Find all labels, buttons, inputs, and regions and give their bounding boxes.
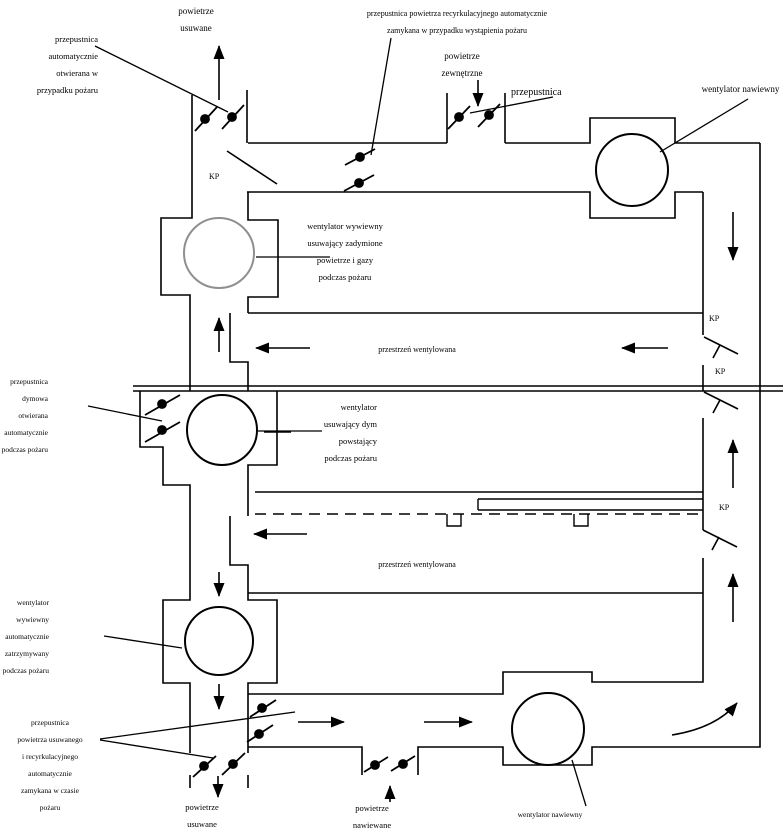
label-line: powietrze	[336, 800, 408, 817]
label-kp-top-left: KP	[209, 172, 231, 181]
label-line: przepustnica	[20, 31, 98, 48]
label-line: powietrze	[432, 48, 492, 65]
damper-recirc-top-2	[344, 175, 374, 191]
label-line: zewnętrzne	[432, 65, 492, 82]
label-line: podczas pożaru	[295, 450, 377, 467]
label-kp-right-1: KP	[709, 314, 731, 323]
leader-recirc-damper-note	[371, 38, 391, 155]
damper-recirc-bottom-2	[247, 725, 273, 742]
label-line: pożaru	[2, 799, 98, 816]
leader-supply-fan-top	[660, 99, 748, 152]
label-line: przestrzeń wentylowana	[372, 341, 462, 358]
label-line: powstający	[295, 433, 377, 450]
label-exhaust-recirc-damper: przepustnica powietrza usuwanego i recyr…	[2, 714, 98, 816]
leader-supply-fan-bottom	[572, 760, 586, 806]
fan-exhaust-stopped-circle	[185, 607, 253, 675]
label-line: otwierana	[0, 407, 48, 424]
label-damper-top: przepustnica	[511, 84, 575, 101]
label-line: przepustnica	[0, 373, 48, 390]
label-line: powietrze	[161, 3, 231, 20]
damper-supply-bottom-1	[364, 757, 388, 772]
damper-exhaust-stack-1	[195, 107, 217, 131]
label-kp-right-2: KP	[715, 367, 737, 376]
label-line: podczas pożaru	[293, 269, 397, 286]
label-line: usuwający dym	[295, 416, 377, 433]
label-line: automatycznie	[0, 424, 48, 441]
label-line: przestrzeń wentylowana	[372, 556, 462, 573]
label-line: i recyrkulacyjnego	[2, 748, 98, 765]
label-ventilated-space-1: przestrzeń wentylowana	[372, 341, 462, 358]
label-supply-air-bottom: powietrze nawiewane	[336, 800, 408, 834]
fire-dampers	[227, 151, 738, 550]
label-line: zamykana w czasie	[2, 782, 98, 799]
suspended-ceiling	[255, 492, 703, 526]
label-line: automatycznie	[2, 765, 98, 782]
damper-exhaust-stack-2	[222, 105, 244, 129]
fire-damper-kp-top-left	[227, 151, 277, 184]
leader-smoke-damper	[88, 406, 162, 421]
fan-supply-bottom-circle	[512, 693, 584, 765]
fan-smoke-exhaust-circle	[184, 218, 254, 288]
label-line: usuwający zadymione	[293, 235, 397, 252]
damper-recirc-top-1	[345, 149, 375, 165]
damper-exhaust-bottom-2	[222, 753, 245, 775]
label-line: podczas pożaru	[0, 662, 49, 679]
label-recirc-damper-note: przepustnica powietrza recyrkulacyjnego …	[366, 5, 548, 39]
label-line: powietrze i gazy	[293, 252, 397, 269]
label-line: przepustnica	[2, 714, 98, 731]
label-line: wentylator nawiewny	[698, 81, 783, 98]
label-line: automatycznie	[20, 48, 98, 65]
label-line: otwierana w	[20, 65, 98, 82]
label-line: przepustnica powietrza recyrkulacyjnego …	[366, 5, 548, 22]
label-line: przypadku pożaru	[20, 82, 98, 99]
damper-supply-bottom-2	[391, 756, 415, 771]
fire-damper-kp-right-3	[703, 530, 737, 550]
duct-outline	[140, 90, 760, 788]
label-exhaust-air-top: powietrze usuwane	[161, 3, 231, 37]
ceiling-hanger	[574, 514, 588, 526]
label-damper-auto-open: przepustnica automatycznie otwierana w p…	[20, 31, 98, 99]
label-line: zamykana w przypadku wystąpienia pożaru	[366, 22, 548, 39]
arrow-corner-curved	[672, 703, 737, 735]
label-line: nawiewane	[336, 817, 408, 834]
label-smoke-extract-fan: wentylator usuwający dym powstający podc…	[295, 399, 377, 467]
label-line: usuwane	[161, 20, 231, 37]
fan-smoke-extract-circle	[187, 395, 257, 465]
damper-smoke-1	[145, 395, 180, 415]
fan-supply-top-circle	[596, 134, 668, 206]
label-line: przepustnica	[511, 84, 575, 101]
damper-exhaust-bottom-1	[193, 756, 216, 777]
ventilation-schematic: powietrze usuwane przepustnica automatyc…	[0, 0, 783, 835]
leader-exhaust-recirc-b	[100, 740, 213, 758]
fire-damper-kp-right-1	[704, 337, 738, 358]
label-line: powietrze	[167, 799, 237, 816]
label-smoke-exhaust-fan: wentylator wywiewny usuwający zadymione …	[293, 218, 397, 286]
label-line: powietrza usuwanego	[2, 731, 98, 748]
label-exhaust-fan-stopped: wentylator wywiewny automatycznie zatrzy…	[0, 594, 49, 679]
ceiling-hanger	[447, 514, 461, 526]
label-ventilated-space-2: przestrzeń wentylowana	[372, 556, 462, 573]
label-supply-fan-top: wentylator nawiewny	[698, 81, 783, 98]
diagram-canvas	[0, 0, 783, 835]
label-line: automatycznie	[0, 628, 49, 645]
label-line: dymowa	[0, 390, 48, 407]
label-line: wentylator	[295, 399, 377, 416]
damper-recirc-bottom-1	[250, 700, 276, 717]
label-line: usuwane	[167, 816, 237, 833]
label-line: podczas pożaru	[0, 441, 48, 458]
label-outside-air: powietrze zewnętrzne	[432, 48, 492, 82]
damper-intake-1	[448, 106, 470, 129]
label-smoke-damper: przepustnica dymowa otwierana automatycz…	[0, 373, 48, 458]
label-kp-right-3: KP	[719, 503, 741, 512]
damper-smoke-2	[145, 422, 180, 442]
label-line: zatrzymywany	[0, 645, 49, 662]
label-line: wentylator nawiewny	[510, 806, 590, 823]
label-exhaust-air-bottom: powietrze usuwane	[167, 799, 237, 833]
label-line: wentylator	[0, 594, 49, 611]
fire-damper-kp-right-2	[704, 392, 738, 413]
label-supply-fan-bottom: wentylator nawiewny	[510, 806, 590, 823]
leader-exhaust-fan-stopped	[104, 636, 182, 648]
floor-slab	[133, 386, 783, 391]
leader-damper-auto-open	[95, 46, 228, 112]
label-line: wentylator wywiewny	[293, 218, 397, 235]
leader-exhaust-recirc-a	[100, 712, 295, 739]
label-line: wywiewny	[0, 611, 49, 628]
